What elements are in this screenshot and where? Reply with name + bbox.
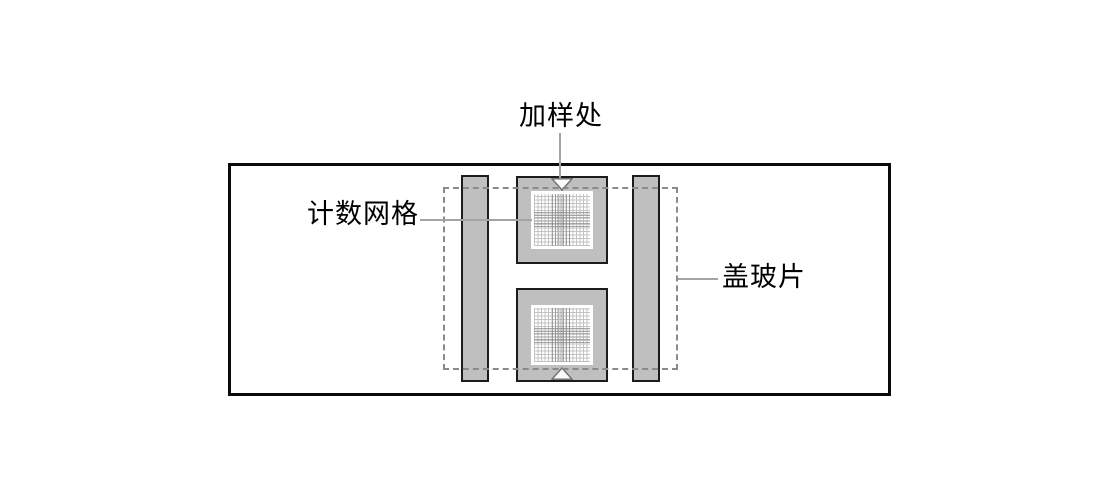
leader-line-cover-glass [678, 278, 718, 280]
label-sample-port: 加样处 [519, 103, 603, 130]
leader-line-sample-port [559, 133, 561, 178]
hemocytometer-diagram: 加样处 计数网格 盖玻片 [0, 0, 1118, 500]
leader-line-counting-grid [420, 219, 532, 221]
coverslip-dashed-outline [443, 187, 678, 370]
label-cover-glass: 盖玻片 [722, 264, 806, 291]
label-counting-grid: 计数网格 [307, 201, 419, 228]
